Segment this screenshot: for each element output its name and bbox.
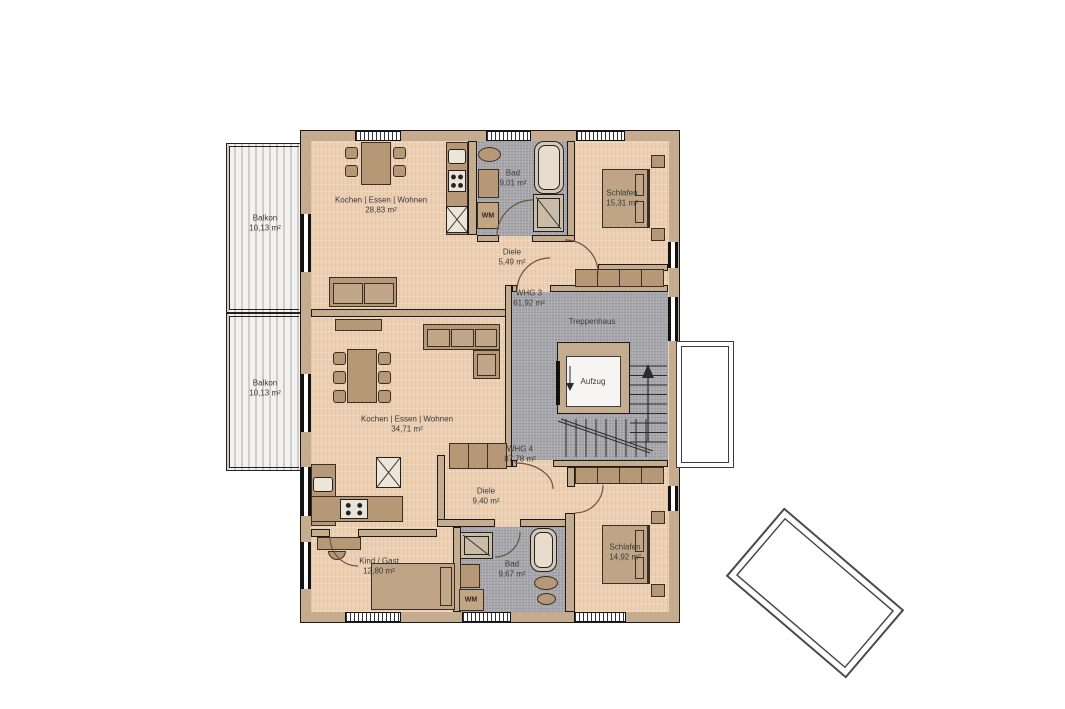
bathtub-whg3 [534, 141, 564, 194]
chair [333, 390, 346, 403]
stove-whg3 [448, 170, 466, 192]
kitchen-sink-whg3 [448, 149, 466, 164]
window-top-schlafen3 [576, 131, 625, 141]
room-label-aufzug: Aufzug [581, 377, 606, 387]
wall-bad4-north-a [437, 519, 495, 527]
chair [378, 371, 391, 384]
window-left-kindgast [301, 542, 311, 589]
kitchen-sink-whg4 [313, 477, 333, 492]
toilet-whg4 [534, 576, 558, 590]
bath-cabinet-whg3 [478, 169, 499, 198]
wall-stairwell-west [505, 285, 512, 467]
room-label-diele-whg3: Diele5,49 m² [498, 248, 525, 269]
window-bottom-kindgast [345, 612, 401, 622]
wall-kitchen-bad-whg3 [468, 141, 477, 235]
stove-whg4 [340, 499, 368, 519]
chair [345, 147, 358, 159]
room-label-diele-whg4: Diele9,40 m² [472, 487, 499, 508]
washbasin-whg4 [537, 593, 556, 605]
room-label-balcony-2: Balkon10,13 m² [249, 379, 281, 400]
bath-cabinet-whg4 [460, 564, 480, 588]
bathtub-whg4 [530, 528, 557, 572]
sofa-whg3 [329, 277, 397, 307]
shower-whg3 [533, 194, 564, 232]
wall-kitchen-diele-whg4 [437, 455, 445, 527]
balcony-door-whg3 [301, 214, 311, 272]
room-label-wohnen-whg3: Kochen | Essen | Wohnen28,83 m² [335, 196, 427, 217]
floor-plan-canvas: Balkon10,13 m² Balkon10,13 m² Kochen | E… [0, 0, 1065, 709]
chair [345, 165, 358, 177]
window-right-schlafen3 [668, 242, 678, 268]
dining-table-whg3 [361, 142, 391, 185]
window-left-kitchen4 [301, 467, 311, 516]
shower-whg4 [460, 532, 493, 559]
nightstand [651, 511, 665, 524]
window-right-stairwell [668, 297, 678, 341]
chair [333, 352, 346, 365]
sideboard-whg4 [335, 319, 382, 331]
nightstand [651, 228, 665, 241]
room-label-bad-whg4: Bad9,67 m² [498, 560, 525, 581]
wall-apartment-divider [311, 309, 506, 317]
washbasin-whg3 [478, 147, 501, 162]
wardrobe-whg3 [576, 269, 664, 287]
room-label-bad-whg3: Bad9,01 m² [499, 169, 526, 190]
wall-kindgast-north-b [358, 529, 437, 537]
room-label-schlafen-whg4: Schlafen14,92 m² [609, 543, 641, 564]
nightstand [651, 155, 665, 168]
label-whg3: WHG 361,92 m² [513, 289, 545, 310]
chair [393, 165, 406, 177]
window-bottom-schlafen4 [574, 612, 626, 622]
window-top-bad3 [486, 131, 531, 141]
fridge-whg3 [446, 206, 468, 233]
chair [378, 390, 391, 403]
label-whg4: WHG 487,78 m² [504, 445, 536, 466]
window-top-living3 [355, 131, 401, 141]
outbuilding-outline [727, 509, 903, 677]
sofa-whg4-top [423, 324, 500, 350]
entrance-landing [676, 341, 734, 468]
chair [378, 352, 391, 365]
wall-schlafen4-west-stub [567, 467, 575, 487]
wall-bad3-south-b [532, 235, 575, 242]
room-label-schlafen-whg3: Schlafen15,31 m² [606, 189, 638, 210]
fridge-whg4 [376, 457, 401, 488]
chair [333, 371, 346, 384]
wall-bad-schlafen-whg3 [567, 141, 575, 240]
chair [393, 147, 406, 159]
wall-kindgast-north-a [311, 529, 330, 537]
wall-bad4-schlafen4 [565, 513, 575, 612]
room-label-treppenhaus: Treppenhaus [569, 317, 616, 327]
label-wm-whg3: WM [482, 211, 494, 220]
window-bottom-bad4 [462, 612, 511, 622]
wall-bad4-north-b [520, 519, 567, 527]
balcony-door-whg4 [301, 374, 311, 432]
room-label-balcony-1: Balkon10,13 m² [249, 214, 281, 235]
desk-kindgast [317, 537, 361, 550]
wardrobe-whg4 [576, 467, 664, 484]
elevator-door-bar [556, 361, 560, 405]
wall-bad3-south-a [477, 235, 499, 242]
wall-stairwell-south-b [553, 460, 668, 467]
lowboard-whg4 [450, 443, 507, 469]
sofa-whg4-side [473, 350, 500, 379]
dining-table-whg4 [347, 349, 377, 403]
label-wm-whg4: WM [465, 595, 477, 604]
nightstand [651, 584, 665, 597]
window-right-schlafen4 [668, 486, 678, 511]
room-label-wohnen-whg4: Kochen | Essen | Wohnen34,71 m² [361, 415, 453, 436]
room-label-kindgast: Kind / Gast12,80 m² [359, 557, 399, 578]
